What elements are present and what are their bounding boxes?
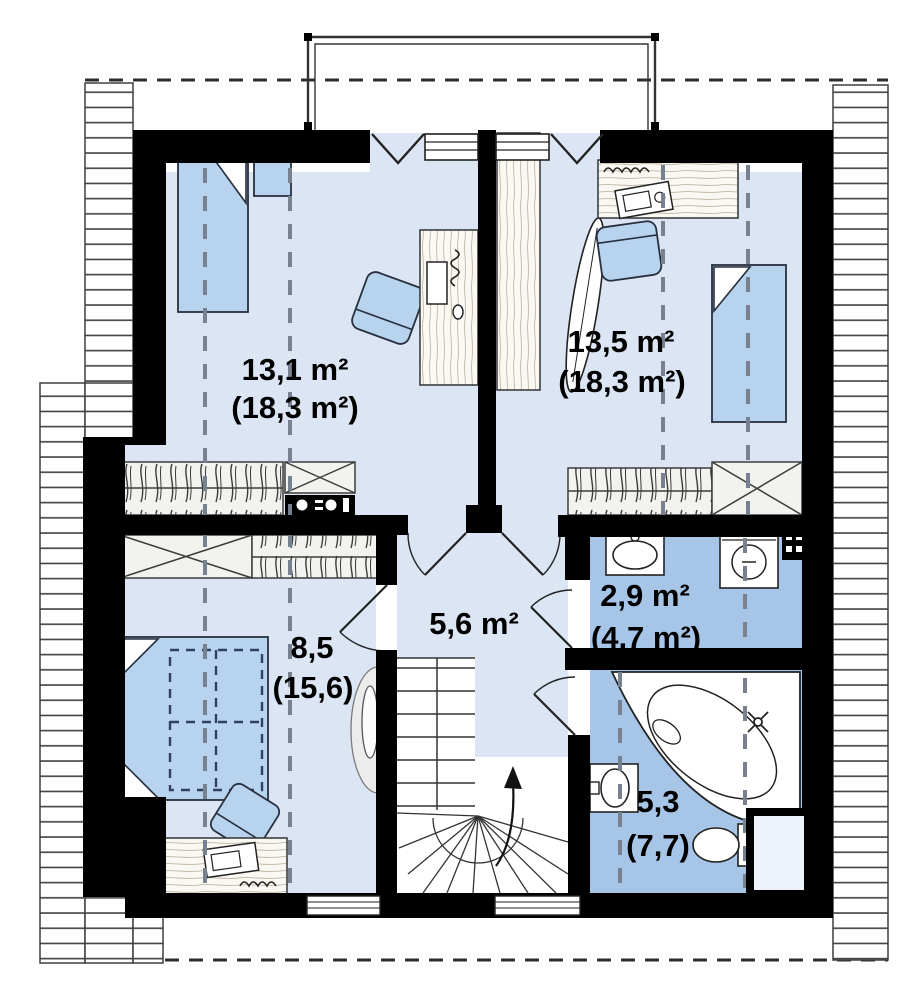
- washing-machine-icon: [720, 530, 778, 588]
- wardrobe-top-left-room: [117, 462, 355, 515]
- floor-door-opening-left: [408, 515, 466, 533]
- wardrobe-bedroom: [120, 535, 380, 578]
- label-bedroom-gross: (15,6): [273, 670, 354, 705]
- nightstand-icon: [254, 160, 291, 196]
- label-hall-area: 5,6 m²: [429, 606, 519, 641]
- wall-mid-right: [558, 515, 833, 537]
- wall-west-step: [125, 437, 166, 445]
- label-room-top-left-area: 13,1 m²: [242, 352, 349, 387]
- keyboard-icon: [427, 262, 447, 304]
- wall-stair-right: [568, 735, 590, 893]
- wall-laundry-west-stub: [565, 533, 590, 580]
- balcony-railing: [304, 33, 659, 131]
- wall-north-left: [133, 130, 370, 163]
- bath-niche: [754, 816, 804, 890]
- desk-icon: [420, 230, 478, 385]
- mouse-icon: [453, 305, 463, 319]
- wardrobe-top-right-room: [568, 462, 802, 515]
- floor-plan-drawing: 13,1 m² (18,3 m²) 13,5 m² (18,3 m²) 8,5 …: [0, 0, 914, 988]
- wall-south: [125, 893, 833, 918]
- window-north-left: [425, 134, 478, 160]
- balcony-post: [651, 122, 659, 130]
- desk-icon: [598, 160, 738, 218]
- window-south-left: [307, 896, 380, 915]
- wall-north-right: [600, 130, 833, 163]
- floor-plan-page: 13,1 m² (18,3 m²) 13,5 m² (18,3 m²) 8,5 …: [0, 0, 914, 988]
- standing-mirror-icon: [362, 686, 378, 758]
- wall-mid-left: [83, 515, 408, 535]
- dresser-icon: [285, 495, 355, 515]
- label-bathroom-gross: (7,7): [626, 828, 690, 863]
- wall-west-upper: [133, 130, 166, 443]
- desk-icon: [160, 838, 287, 898]
- balcony-post: [651, 33, 659, 41]
- label-bedroom-area: 8,5: [290, 630, 333, 665]
- window-south-right: [495, 896, 580, 915]
- wall-counter-icon: [497, 133, 540, 390]
- wall-central: [478, 130, 496, 515]
- bed-double-icon: [118, 637, 268, 800]
- label-laundry-area: 2,9 m²: [600, 578, 690, 613]
- floor-door-opening-right: [502, 515, 558, 533]
- wall-stair-left: [376, 650, 397, 893]
- label-room-top-right-area: 13,5 m²: [568, 324, 675, 359]
- desk-chair-icon: [596, 220, 663, 282]
- window-north-right: [496, 134, 549, 160]
- wall-west-lower: [83, 437, 125, 897]
- label-bathroom-area: 5,3: [636, 784, 679, 819]
- washbasin-icon: [590, 764, 638, 812]
- label-laundry-gross: (4,7 m²): [591, 620, 701, 655]
- balcony-post: [304, 122, 312, 130]
- wall-hall-west-stub: [376, 533, 397, 585]
- wall-central-foot: [466, 505, 502, 533]
- label-room-top-left-gross: (18,3 m²): [231, 390, 358, 425]
- roof-hatch-right: [833, 85, 888, 960]
- balcony-post: [304, 33, 312, 41]
- wall-sw-corner: [125, 797, 166, 893]
- label-room-top-right-gross: (18,3 m²): [558, 364, 685, 399]
